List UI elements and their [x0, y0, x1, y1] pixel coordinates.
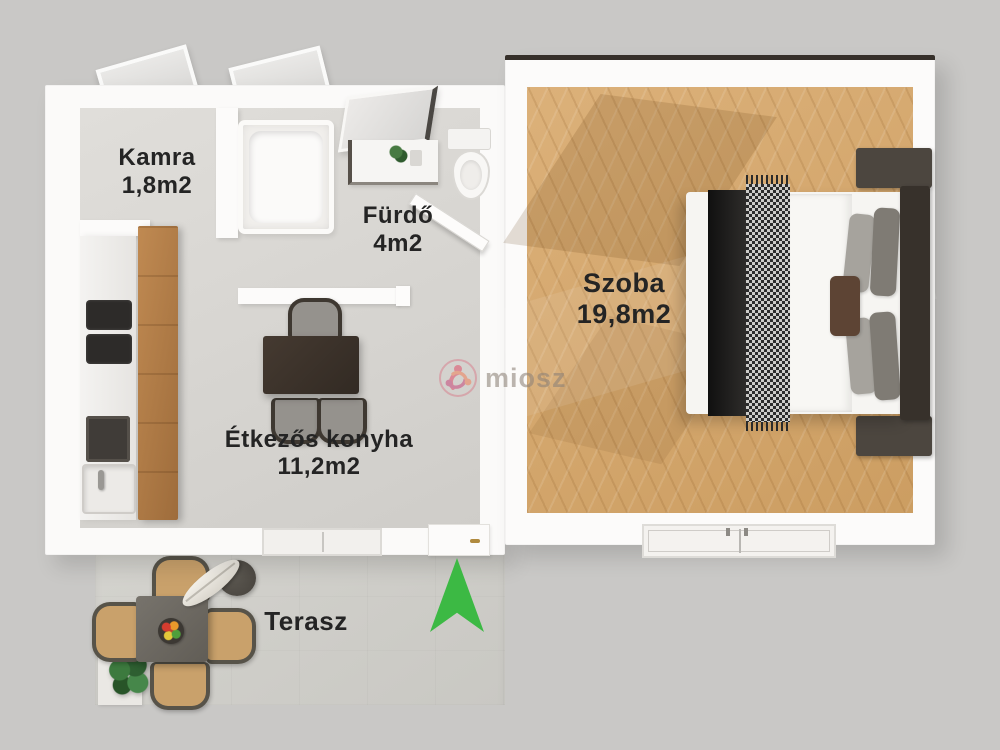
bed-throw-blanket — [708, 190, 746, 416]
room-area: 1,8m2 — [118, 172, 195, 200]
room-name: Étkezős konyha — [225, 426, 413, 453]
nightstand — [856, 416, 932, 456]
oven-icon — [86, 416, 130, 462]
cooktop-icon — [86, 334, 132, 364]
wall-edge — [505, 55, 935, 60]
wood-cabinet — [138, 226, 178, 520]
watermark-text: miosz — [485, 363, 567, 394]
door-jamb — [396, 286, 410, 306]
terrace-chair — [206, 608, 256, 664]
room-label-terasz: Terasz — [264, 606, 347, 636]
terrace-door — [428, 524, 490, 556]
fruit-bowl-icon — [158, 618, 184, 644]
room-label-szoba: Szoba 19,8m2 — [577, 268, 672, 330]
terrace-chair — [92, 602, 140, 662]
window-handle-icon — [726, 528, 730, 536]
room-name: Terasz — [264, 606, 347, 636]
dining-table — [263, 336, 359, 394]
room-area: 4m2 — [363, 230, 433, 258]
watermark: miosz — [437, 352, 577, 404]
sink-icon — [82, 464, 136, 514]
window-handle-icon — [744, 528, 748, 536]
interior-wall — [216, 108, 238, 238]
window-icon — [262, 528, 382, 556]
floorplan-canvas: Kamra 1,8m2 Fürdő 4m2 Szoba 19,8m2 Étkez… — [0, 0, 1000, 750]
cooktop-icon — [86, 300, 132, 330]
pillow — [830, 276, 860, 336]
pillow — [870, 207, 901, 296]
room-name: Szoba — [577, 268, 672, 299]
toilet-tank — [447, 128, 491, 150]
window-icon — [642, 524, 836, 558]
miosz-logo-icon — [437, 357, 479, 399]
nightstand — [856, 148, 932, 188]
plant-icon — [388, 144, 408, 164]
bed-throw-houndstooth — [746, 184, 790, 422]
terrace-chair — [150, 662, 210, 710]
vase-icon — [410, 150, 422, 166]
faucet-icon — [98, 470, 104, 490]
room-label-furdo: Fürdő 4m2 — [363, 202, 433, 258]
bathtub-icon — [238, 120, 334, 234]
room-label-konyha: Étkezős konyha 11,2m2 — [225, 426, 413, 480]
door-handle-icon — [470, 539, 480, 543]
dining-chair — [288, 298, 342, 340]
room-name: Kamra — [118, 144, 195, 172]
room-area: 19,8m2 — [577, 299, 672, 330]
bed-headboard — [900, 186, 930, 420]
room-label-kamra: Kamra 1,8m2 — [118, 144, 195, 200]
room-area: 11,2m2 — [225, 453, 413, 480]
room-name: Fürdő — [363, 202, 433, 230]
